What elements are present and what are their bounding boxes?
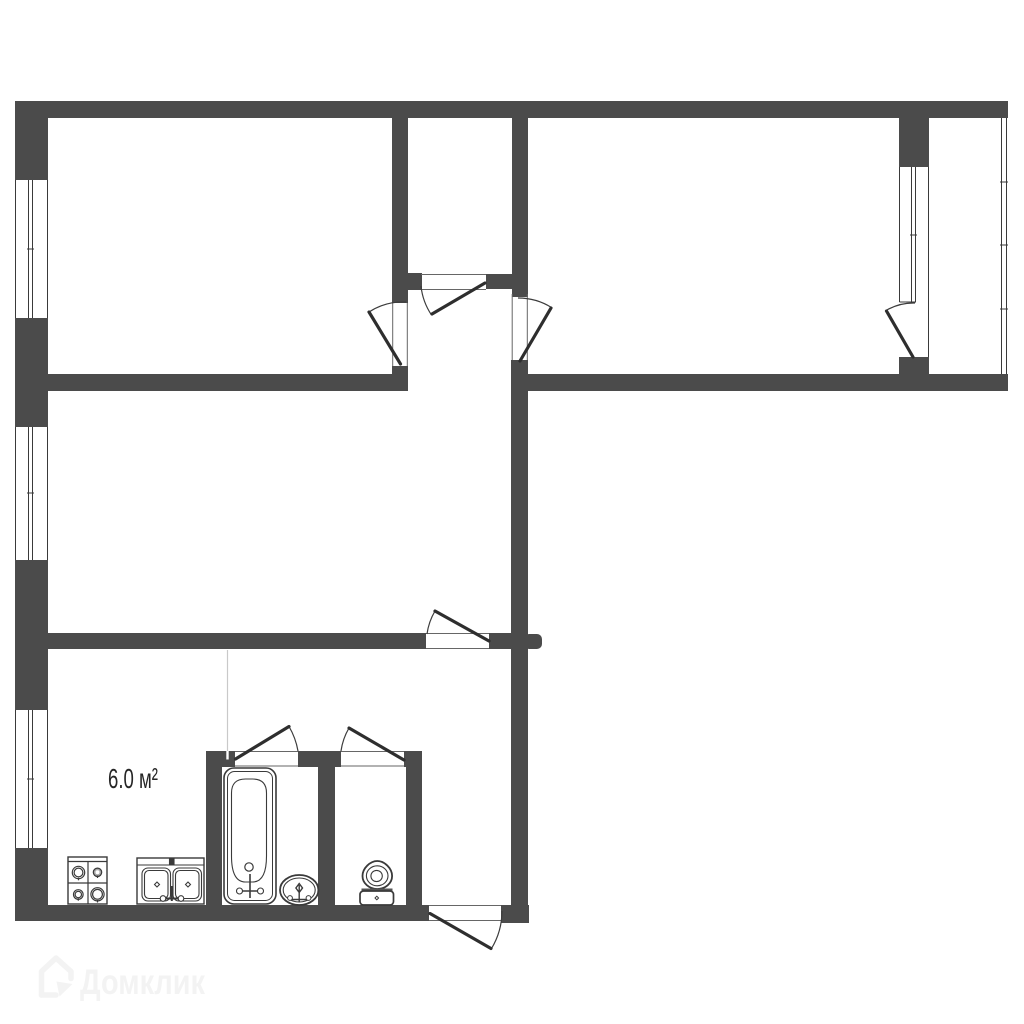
svg-text:Домклик: Домклик [80, 963, 205, 1002]
svg-text:6.0 м²: 6.0 м² [108, 763, 158, 794]
